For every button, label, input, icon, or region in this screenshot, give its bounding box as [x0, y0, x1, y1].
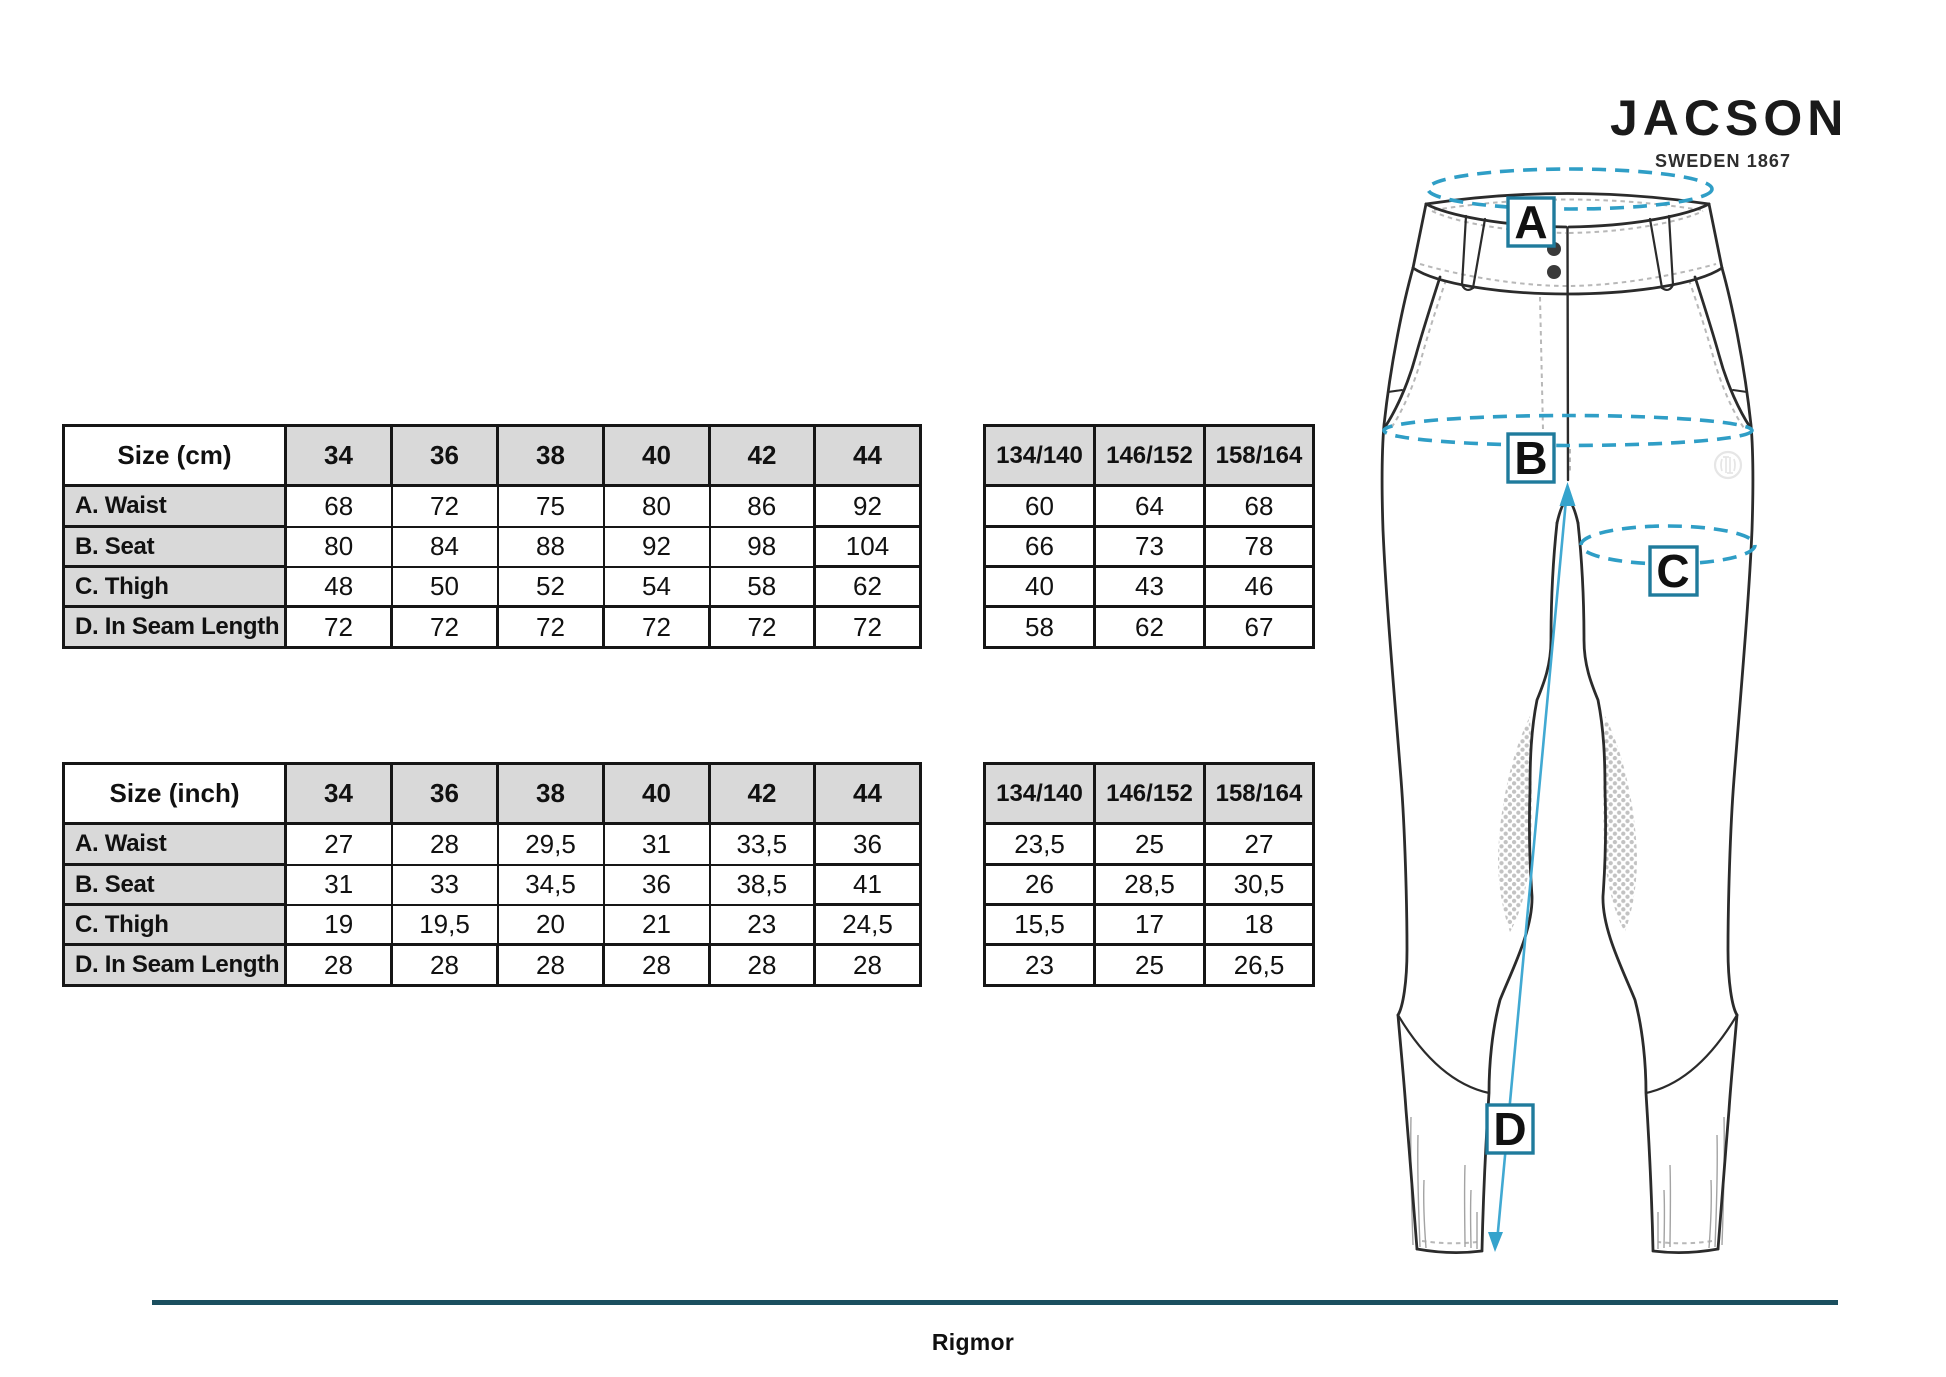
svg-text:B: B: [1514, 432, 1547, 484]
svg-text:A: A: [1514, 196, 1547, 248]
svg-text:D: D: [1493, 1103, 1526, 1155]
svg-text:C: C: [1656, 545, 1689, 597]
